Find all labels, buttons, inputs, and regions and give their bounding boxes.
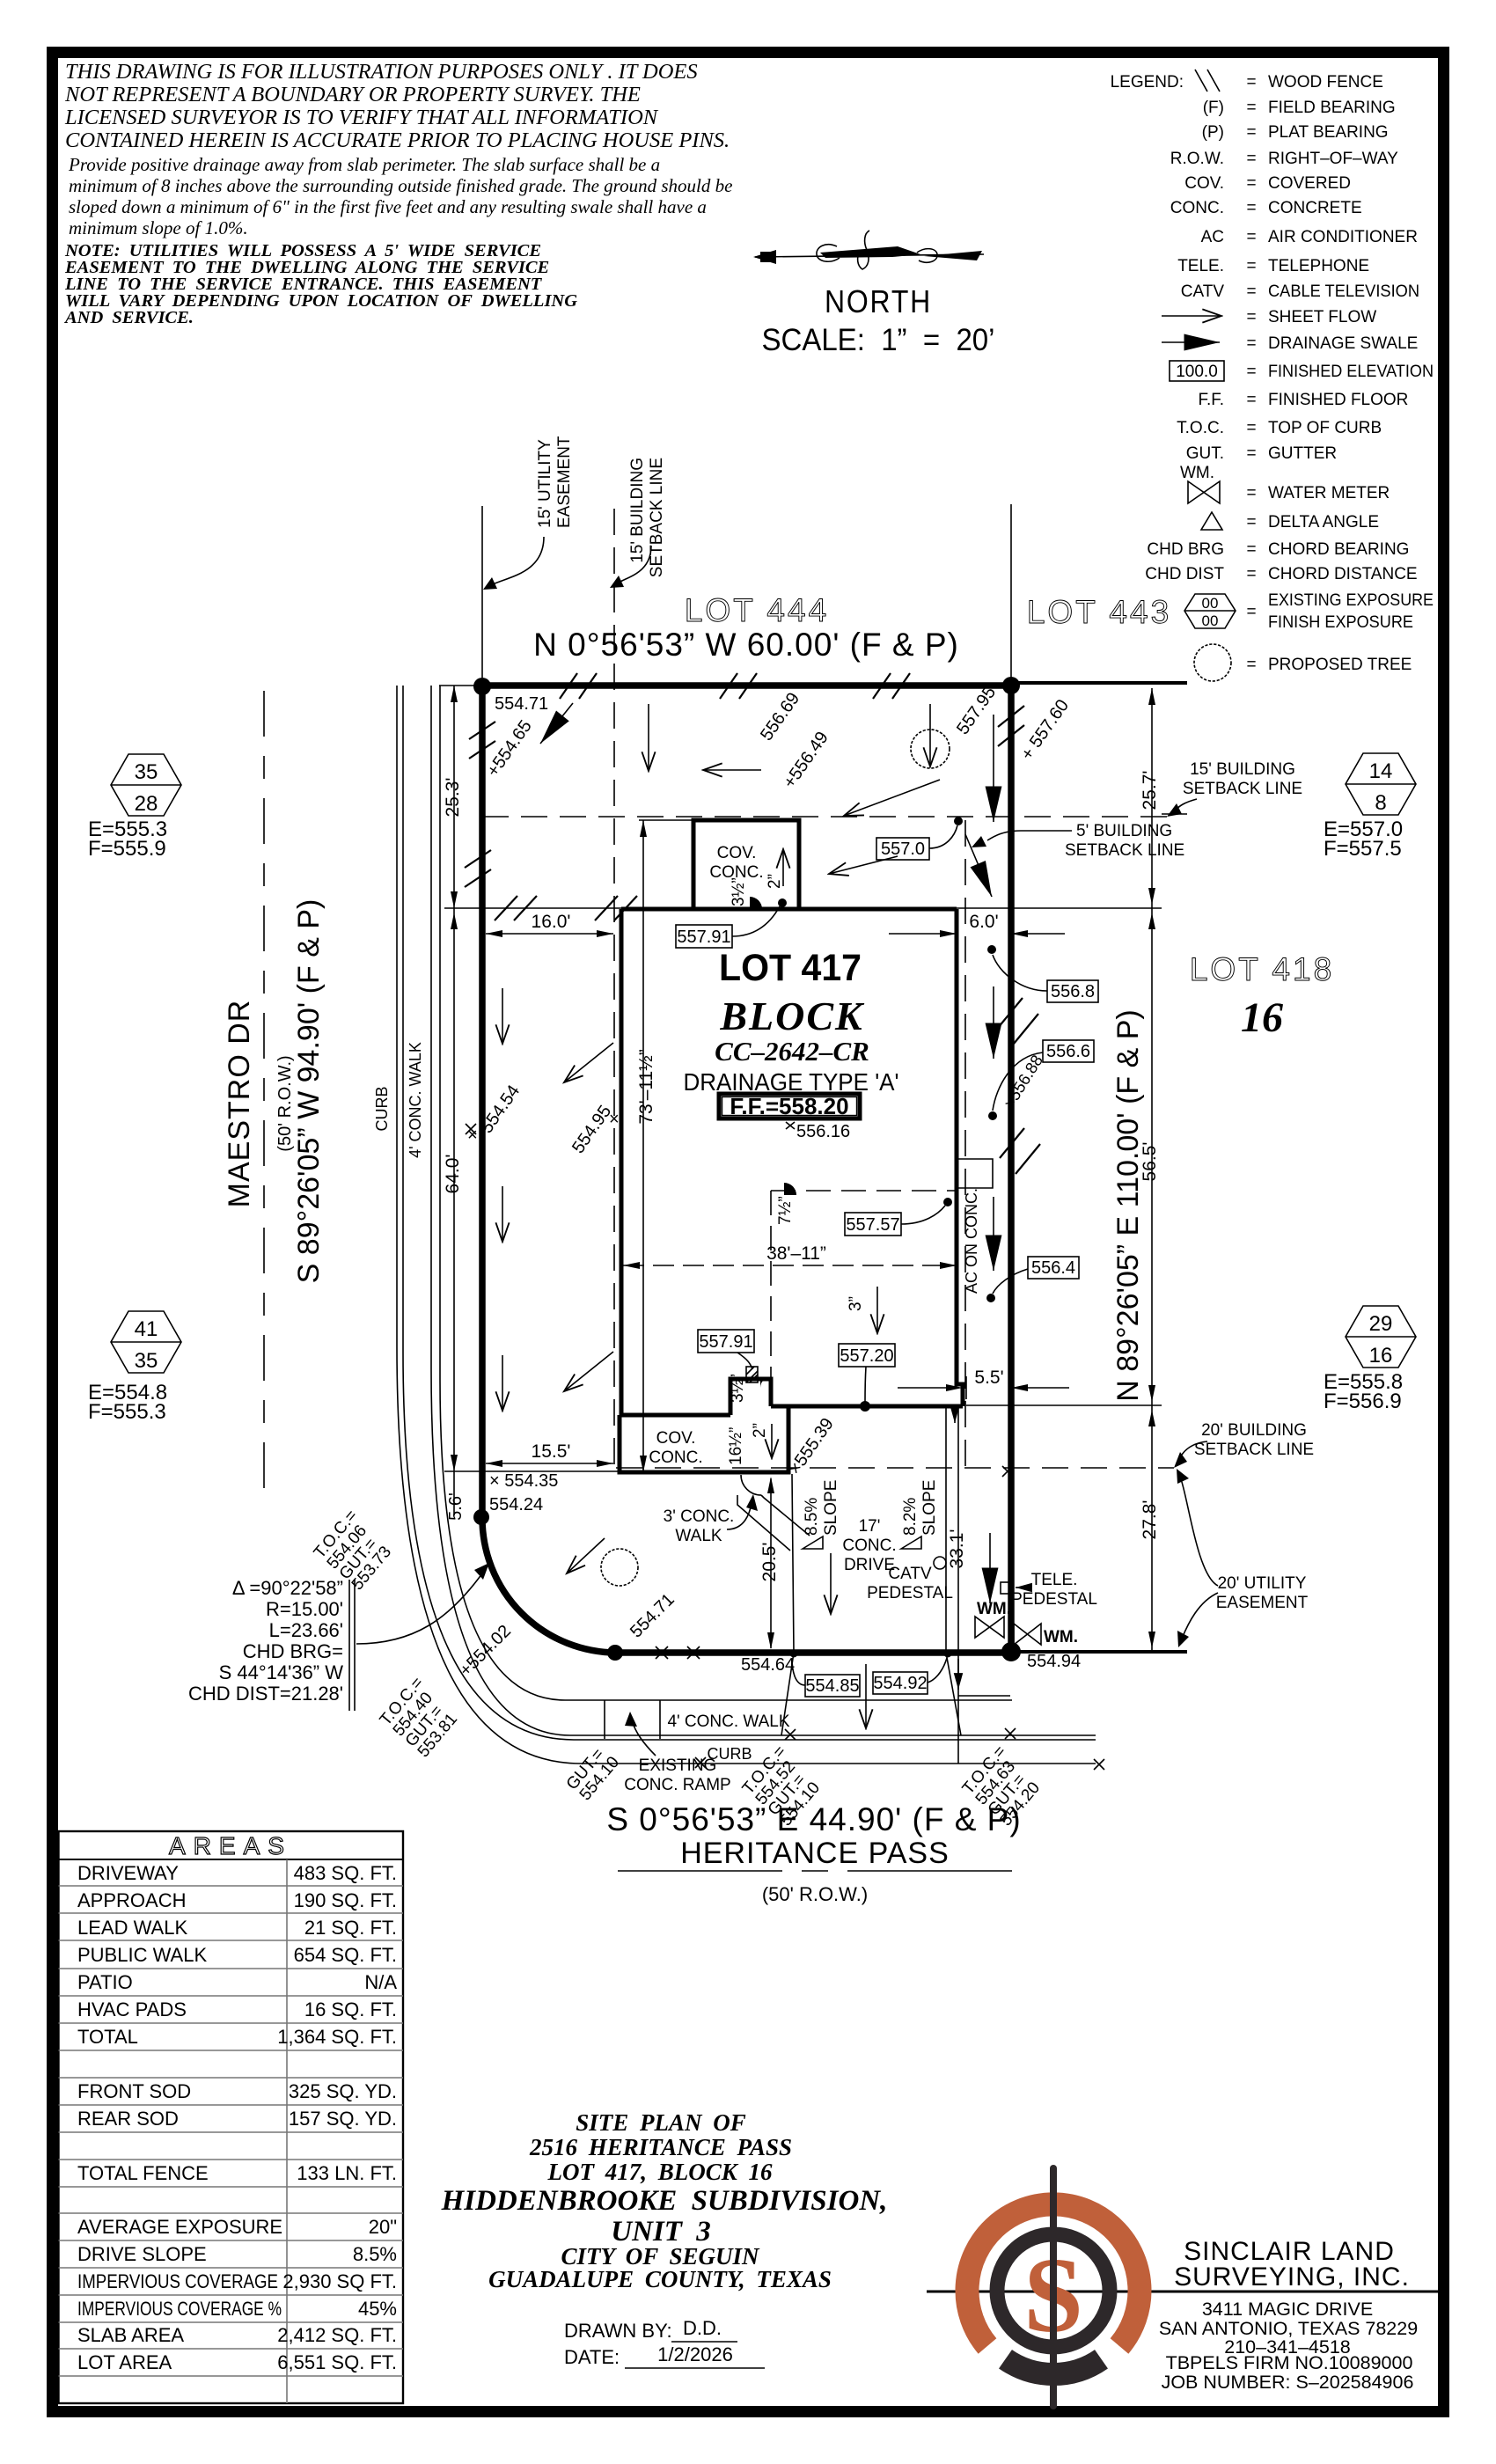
- svg-text:L=23.66': L=23.66': [269, 1619, 343, 1641]
- svg-text:CHD BRG: CHD BRG: [1147, 540, 1224, 559]
- svg-text:20' BUILDING: 20' BUILDING: [1201, 1421, 1307, 1440]
- svg-text:SETBACK LINE: SETBACK LINE: [648, 458, 666, 577]
- svg-text:6.0': 6.0': [969, 912, 998, 932]
- svg-text:=: =: [1246, 257, 1256, 275]
- svg-text:F=555.9: F=555.9: [88, 837, 166, 861]
- svg-text:20' UTILITY: 20' UTILITY: [1218, 1574, 1307, 1593]
- svg-text:=: =: [1246, 282, 1256, 301]
- svg-text:DRAWN BY:: DRAWN BY:: [564, 2320, 672, 2342]
- svg-text:GUT.: GUT.: [1186, 444, 1224, 463]
- svg-text:27.8': 27.8': [1140, 1500, 1160, 1540]
- svg-text:64.0': 64.0': [443, 1155, 463, 1194]
- svg-text:COV.: COV.: [717, 844, 757, 862]
- svg-text:R=15.00': R=15.00': [266, 1598, 343, 1620]
- svg-text:=: =: [1246, 334, 1256, 353]
- svg-text:6,551 SQ. FT.: 6,551 SQ. FT.: [277, 2351, 397, 2373]
- svg-text:(P): (P): [1202, 123, 1224, 142]
- svg-text:TBPELS FIRM NO.10089000: TBPELS FIRM NO.10089000: [1166, 2352, 1413, 2373]
- svg-text:CONC.: CONC.: [1170, 199, 1224, 217]
- svg-text:=: =: [1246, 391, 1256, 409]
- svg-text:=: =: [1246, 513, 1256, 532]
- svg-text:33.1': 33.1': [947, 1529, 967, 1569]
- svg-text:F=556.9: F=556.9: [1324, 1390, 1402, 1413]
- svg-text:SETBACK LINE: SETBACK LINE: [1183, 780, 1302, 798]
- svg-text:CURB: CURB: [707, 1745, 752, 1763]
- svg-text:556.8: 556.8: [1051, 982, 1095, 1001]
- svg-text:EASEMENT: EASEMENT: [555, 436, 574, 528]
- svg-text:AC: AC: [1201, 228, 1224, 246]
- svg-text:3½”: 3½”: [730, 877, 748, 906]
- svg-text:2”: 2”: [766, 874, 784, 889]
- svg-text:× 554.35: × 554.35: [489, 1471, 558, 1491]
- svg-text:PEDESTAL: PEDESTAL: [867, 1584, 953, 1602]
- svg-text:F.F.=558.20: F.F.=558.20: [730, 1093, 848, 1119]
- svg-text:CABLE TELEVISION: CABLE TELEVISION: [1268, 282, 1419, 301]
- svg-text:CONCRETE: CONCRETE: [1268, 199, 1362, 217]
- svg-text:HIDDENBROOKE SUBDIVISION,: HIDDENBROOKE SUBDIVISION,: [441, 2185, 888, 2217]
- svg-text:557.91: 557.91: [699, 1332, 752, 1352]
- svg-text:AND SERVICE.: AND SERVICE.: [63, 308, 194, 327]
- svg-text:16½”: 16½”: [727, 1427, 745, 1465]
- svg-text:PEDESTAL: PEDESTAL: [1011, 1590, 1097, 1609]
- svg-text:16: 16: [1369, 1344, 1393, 1368]
- svg-text:7½”: 7½”: [776, 1196, 795, 1225]
- svg-text:21 SQ. FT.: 21 SQ. FT.: [304, 1917, 397, 1939]
- svg-text:=: =: [1246, 565, 1256, 583]
- svg-text:3' CONC.: 3' CONC.: [664, 1507, 735, 1526]
- svg-text:CONC. RAMP: CONC. RAMP: [624, 1776, 730, 1794]
- svg-text:8.5%: 8.5%: [803, 1498, 821, 1536]
- svg-text:S 0°56'53” E 44.90' (F & P): S 0°56'53” E 44.90' (F & P): [606, 1801, 1021, 1837]
- svg-text:38'–11”: 38'–11”: [766, 1243, 826, 1264]
- svg-text:FIELD BEARING: FIELD BEARING: [1268, 99, 1396, 117]
- svg-text:AREAS: AREAS: [169, 1832, 292, 1859]
- svg-text:AVERAGE EXPOSURE: AVERAGE EXPOSURE: [77, 2216, 282, 2238]
- svg-text:=: =: [1246, 150, 1256, 168]
- svg-text:35: 35: [135, 1349, 158, 1373]
- svg-text:1/2/2026: 1/2/2026: [657, 2343, 733, 2365]
- svg-text:=: =: [1246, 540, 1256, 559]
- svg-text:8: 8: [1375, 791, 1386, 815]
- svg-text:CURB: CURB: [373, 1086, 391, 1131]
- svg-text:COVERED: COVERED: [1268, 174, 1351, 193]
- svg-text:1,364 SQ. FT.: 1,364 SQ. FT.: [277, 2026, 397, 2048]
- svg-text:=: =: [1246, 123, 1256, 142]
- svg-text:SLAB AREA: SLAB AREA: [77, 2324, 184, 2346]
- svg-text:FINISHED ELEVATION: FINISHED ELEVATION: [1268, 363, 1434, 381]
- svg-text:4' CONC. WALK: 4' CONC. WALK: [407, 1042, 424, 1158]
- svg-text:41: 41: [135, 1317, 158, 1341]
- svg-text:N 0°56'53” W 60.00' (F & P): N 0°56'53” W 60.00' (F & P): [533, 627, 959, 663]
- svg-text:=: =: [1246, 73, 1256, 92]
- svg-text:554.24: 554.24: [489, 1495, 543, 1514]
- svg-text:LOT 444: LOT 444: [685, 592, 829, 628]
- svg-text:00: 00: [1202, 595, 1219, 612]
- svg-text:LEAD WALK: LEAD WALK: [77, 1917, 187, 1939]
- svg-text:DRAINAGE SWALE: DRAINAGE SWALE: [1268, 334, 1418, 353]
- svg-text:56.5': 56.5': [1140, 1142, 1160, 1182]
- svg-text:WATER METER: WATER METER: [1268, 484, 1390, 502]
- svg-text:=: =: [1246, 363, 1256, 381]
- svg-text:NOT REPRESENT A BOUNDARY OR PR: NOT REPRESENT A BOUNDARY OR PROPERTY SUR…: [64, 83, 641, 106]
- svg-text:14: 14: [1369, 759, 1393, 783]
- svg-text:=: =: [1246, 174, 1256, 193]
- svg-text:EXISTING: EXISTING: [639, 1756, 717, 1775]
- svg-text:GUTTER: GUTTER: [1268, 444, 1337, 463]
- svg-text:3411 MAGIC DRIVE: 3411 MAGIC DRIVE: [1202, 2299, 1373, 2320]
- svg-text:LOT 417: LOT 417: [719, 947, 862, 989]
- svg-text:DATE:: DATE:: [564, 2346, 620, 2368]
- svg-text:GUADALUPE COUNTY, TEXAS: GUADALUPE COUNTY, TEXAS: [488, 2266, 832, 2292]
- svg-text:FINISH EXPOSURE: FINISH EXPOSURE: [1268, 613, 1413, 632]
- svg-text:LOT 443: LOT 443: [1027, 594, 1171, 630]
- svg-text:=: =: [1246, 603, 1256, 621]
- svg-text:16: 16: [1241, 994, 1283, 1041]
- svg-text:PUBLIC WALK: PUBLIC WALK: [77, 1944, 207, 1966]
- svg-text:LEGEND:: LEGEND:: [1111, 73, 1184, 92]
- svg-text:D.D.: D.D.: [683, 2317, 722, 2339]
- svg-text:CHD DIST=21.28': CHD DIST=21.28': [188, 1683, 343, 1705]
- svg-text:DRIVEWAY: DRIVEWAY: [77, 1862, 179, 1884]
- svg-text:TOTAL: TOTAL: [77, 2026, 138, 2048]
- svg-text:R.O.W.: R.O.W.: [1170, 150, 1224, 168]
- svg-text:×: ×: [467, 1126, 478, 1145]
- svg-text:×: ×: [609, 1110, 620, 1129]
- svg-text:CONC.: CONC.: [649, 1448, 702, 1467]
- svg-text:sloped down a minimum of 6" in: sloped down a minimum of 6" in the first…: [69, 196, 707, 217]
- svg-text:COV.: COV.: [1184, 174, 1224, 193]
- svg-text:557.57: 557.57: [846, 1215, 899, 1235]
- svg-text:SLOPE: SLOPE: [822, 1480, 840, 1536]
- svg-text:AIR CONDITIONER: AIR CONDITIONER: [1268, 228, 1418, 246]
- svg-text:3½”: 3½”: [729, 1374, 747, 1403]
- svg-text:DRAINAGE TYPE 'A': DRAINAGE TYPE 'A': [684, 1068, 899, 1096]
- svg-text:T.O.C.: T.O.C.: [1177, 419, 1224, 437]
- svg-text:2,412 SQ. FT.: 2,412 SQ. FT.: [277, 2324, 397, 2346]
- svg-text:CHORD BEARING: CHORD BEARING: [1268, 540, 1409, 559]
- svg-text:557.20: 557.20: [840, 1346, 893, 1366]
- svg-text:SETBACK LINE: SETBACK LINE: [1065, 841, 1184, 860]
- svg-text:N/A: N/A: [364, 1971, 397, 1993]
- svg-text:556.6: 556.6: [1046, 1042, 1090, 1061]
- svg-text:654 SQ. FT.: 654 SQ. FT.: [294, 1944, 397, 1966]
- svg-text:RIGHT–OF–WAY: RIGHT–OF–WAY: [1268, 150, 1398, 168]
- svg-text:Provide positive drainage away: Provide positive drainage away from slab…: [68, 154, 660, 175]
- svg-text:100.0: 100.0: [1176, 363, 1218, 381]
- svg-text:2516 HERITANCE PASS: 2516 HERITANCE PASS: [529, 2134, 792, 2160]
- svg-text:73'–11½”: 73'–11½”: [636, 1049, 656, 1124]
- svg-text:TOTAL FENCE: TOTAL FENCE: [77, 2162, 209, 2184]
- svg-text:2,930 SQ FT.: 2,930 SQ FT.: [282, 2270, 397, 2292]
- svg-text:5' BUILDING: 5' BUILDING: [1076, 822, 1172, 840]
- svg-text:8.2%: 8.2%: [901, 1498, 920, 1536]
- svg-text:29: 29: [1369, 1312, 1393, 1336]
- svg-text:557.0: 557.0: [881, 840, 925, 859]
- svg-text:SHEET FLOW: SHEET FLOW: [1268, 308, 1376, 326]
- svg-text:CC–2642–CR: CC–2642–CR: [715, 1036, 869, 1067]
- svg-text:PATIO: PATIO: [77, 1971, 133, 1993]
- svg-text:=: =: [1246, 99, 1256, 117]
- svg-text:CONC.: CONC.: [842, 1536, 896, 1555]
- svg-text:CONTAINED HEREIN IS ACCURATE P: CONTAINED HEREIN IS ACCURATE PRIOR TO PL…: [65, 128, 730, 152]
- svg-text:TELEPHONE: TELEPHONE: [1268, 257, 1369, 275]
- svg-text:25.3': 25.3': [443, 778, 463, 818]
- svg-text:554.94: 554.94: [1027, 1652, 1081, 1671]
- svg-text:3”: 3”: [847, 1296, 865, 1311]
- svg-text:SLOPE: SLOPE: [920, 1480, 939, 1536]
- svg-text:=: =: [1246, 419, 1256, 437]
- svg-text:=: =: [1246, 228, 1256, 246]
- svg-text:(50' R.O.W.): (50' R.O.W.): [762, 1883, 868, 1905]
- svg-text:S 44°14'36” W: S 44°14'36” W: [219, 1661, 344, 1683]
- svg-text:LICENSED SURVEYOR IS TO VERIFY: LICENSED SURVEYOR IS TO VERIFY THAT ALL …: [64, 106, 659, 129]
- svg-text:(F): (F): [1203, 99, 1224, 117]
- svg-text:16.0': 16.0': [532, 912, 571, 932]
- svg-text:BLOCK: BLOCK: [719, 994, 865, 1038]
- svg-text:=: =: [1246, 444, 1256, 463]
- svg-text:554.71: 554.71: [495, 694, 548, 714]
- svg-text:CHD DIST: CHD DIST: [1145, 565, 1224, 583]
- svg-text:CATV: CATV: [1181, 282, 1225, 301]
- svg-text:REAR SOD: REAR SOD: [77, 2108, 179, 2130]
- svg-text:EASEMENT: EASEMENT: [1216, 1594, 1309, 1612]
- svg-text:LOT 417, BLOCK 16: LOT 417, BLOCK 16: [546, 2159, 773, 2185]
- svg-text:25.7': 25.7': [1140, 771, 1160, 810]
- svg-text:15.5': 15.5': [532, 1441, 571, 1462]
- svg-text:DRIVE: DRIVE: [844, 1556, 895, 1574]
- svg-text:minimum of 8 inches above the: minimum of 8 inches above the surroundin…: [69, 175, 732, 196]
- svg-text:557.91: 557.91: [677, 928, 730, 947]
- svg-text:JOB NUMBER: S–202584906: JOB NUMBER: S–202584906: [1162, 2372, 1414, 2393]
- svg-text:AC ON CONC.: AC ON CONC.: [963, 1188, 980, 1294]
- svg-text:S 89°26'05” W 94.90' (F & P): S 89°26'05” W 94.90' (F & P): [292, 899, 326, 1284]
- svg-text:NORTH: NORTH: [825, 283, 932, 319]
- svg-text:15' BUILDING: 15' BUILDING: [628, 458, 647, 563]
- svg-text:28: 28: [135, 792, 158, 816]
- svg-text:HERITANCE PASS: HERITANCE PASS: [680, 1837, 950, 1870]
- svg-text:LOT 418: LOT 418: [1190, 951, 1334, 987]
- svg-text:F=555.3: F=555.3: [88, 1400, 166, 1424]
- svg-text:325 SQ. YD.: 325 SQ. YD.: [289, 2080, 397, 2102]
- svg-text:=: =: [1246, 308, 1256, 326]
- svg-text:35: 35: [135, 760, 158, 784]
- svg-text:4' CONC. WALK: 4' CONC. WALK: [667, 1712, 789, 1731]
- svg-text:EXISTING EXPOSURE: EXISTING EXPOSURE: [1268, 591, 1434, 610]
- svg-text:SURVEYING, INC.: SURVEYING, INC.: [1174, 2262, 1410, 2292]
- svg-text:F.F.: F.F.: [1198, 391, 1224, 409]
- svg-text:DRIVE SLOPE: DRIVE SLOPE: [77, 2243, 207, 2265]
- svg-text:133 LN. FT.: 133 LN. FT.: [297, 2162, 397, 2184]
- svg-text:554.64: 554.64: [741, 1655, 795, 1675]
- svg-text:8.5%: 8.5%: [353, 2243, 397, 2265]
- svg-text:190 SQ. FT.: 190 SQ. FT.: [294, 1889, 397, 1911]
- svg-text:17': 17': [859, 1517, 881, 1536]
- svg-text:SITE PLAN OF: SITE PLAN OF: [576, 2109, 746, 2136]
- svg-text:20": 20": [369, 2216, 397, 2238]
- svg-text:WOOD FENCE: WOOD FENCE: [1268, 73, 1383, 92]
- svg-text:5.5': 5.5': [974, 1368, 1003, 1388]
- svg-text:HVAC PADS: HVAC PADS: [77, 1998, 187, 2020]
- svg-text:FRONT SOD: FRONT SOD: [77, 2080, 191, 2102]
- svg-text:157 SQ. YD.: 157 SQ. YD.: [289, 2108, 397, 2130]
- svg-text:APPROACH: APPROACH: [77, 1889, 186, 1911]
- svg-text:00: 00: [1202, 612, 1219, 629]
- svg-text:5.6': 5.6': [446, 1492, 466, 1521]
- svg-text:CATV: CATV: [888, 1565, 932, 1583]
- svg-text:15' BUILDING: 15' BUILDING: [1190, 760, 1295, 779]
- svg-text:LOT AREA: LOT AREA: [77, 2351, 172, 2373]
- svg-text:IMPERVIOUS COVERAGE %: IMPERVIOUS COVERAGE %: [77, 2298, 282, 2320]
- svg-text:TOP OF CURB: TOP OF CURB: [1268, 419, 1382, 437]
- svg-text:PLAT BEARING: PLAT BEARING: [1268, 123, 1389, 142]
- svg-text:CHD BRG=: CHD BRG=: [243, 1640, 343, 1662]
- svg-text:WM.: WM.: [1180, 464, 1214, 482]
- svg-text:WM.: WM.: [1044, 1628, 1078, 1646]
- svg-text:FINISHED FLOOR: FINISHED FLOOR: [1268, 391, 1408, 409]
- svg-text:556.4: 556.4: [1031, 1258, 1075, 1278]
- svg-text:2”: 2”: [751, 1423, 769, 1438]
- svg-text:TELE.: TELE.: [1177, 257, 1224, 275]
- svg-text:N 89°26'05” E 110.00' (F & P): N 89°26'05” E 110.00' (F & P): [1111, 1009, 1145, 1402]
- svg-text:MAESTRO DR: MAESTRO DR: [223, 1000, 256, 1208]
- svg-text:WM.: WM.: [977, 1600, 1011, 1618]
- svg-text:WALK: WALK: [675, 1527, 722, 1545]
- svg-text:F=557.5: F=557.5: [1324, 837, 1402, 861]
- svg-text:554.85: 554.85: [805, 1676, 859, 1696]
- svg-text:16 SQ. FT.: 16 SQ. FT.: [304, 1998, 397, 2020]
- svg-text:THIS DRAWING IS FOR ILLUSTRATI: THIS DRAWING IS FOR ILLUSTRATION PURPOSE…: [65, 60, 698, 84]
- svg-text:TELE.: TELE.: [1031, 1571, 1078, 1589]
- svg-text:SCALE: 1” = 20’: SCALE: 1” = 20’: [762, 323, 995, 357]
- svg-text:483 SQ. FT.: 483 SQ. FT.: [294, 1862, 397, 1884]
- svg-text:=: =: [1246, 199, 1256, 217]
- svg-text:=: =: [1246, 484, 1256, 502]
- svg-text:554.92: 554.92: [873, 1674, 927, 1693]
- svg-text:DELTA ANGLE: DELTA ANGLE: [1268, 513, 1379, 532]
- svg-text:IMPERVIOUS COVERAGE: IMPERVIOUS COVERAGE: [77, 2270, 278, 2292]
- svg-text:COV.: COV.: [656, 1429, 696, 1448]
- svg-text:PROPOSED TREE: PROPOSED TREE: [1268, 656, 1412, 674]
- svg-text:minimum slope of 1.0%.: minimum slope of 1.0%.: [69, 217, 248, 238]
- svg-text:20.5': 20.5': [759, 1543, 780, 1582]
- svg-text:15' UTILITY: 15' UTILITY: [536, 439, 554, 528]
- svg-text:45%: 45%: [358, 2298, 397, 2320]
- svg-text:CHORD DISTANCE: CHORD DISTANCE: [1268, 565, 1418, 583]
- svg-text:556.16: 556.16: [796, 1122, 850, 1141]
- svg-text:SETBACK LINE: SETBACK LINE: [1194, 1441, 1314, 1459]
- svg-text:Δ =90°22'58”: Δ =90°22'58”: [232, 1577, 343, 1599]
- svg-text:=: =: [1246, 656, 1256, 674]
